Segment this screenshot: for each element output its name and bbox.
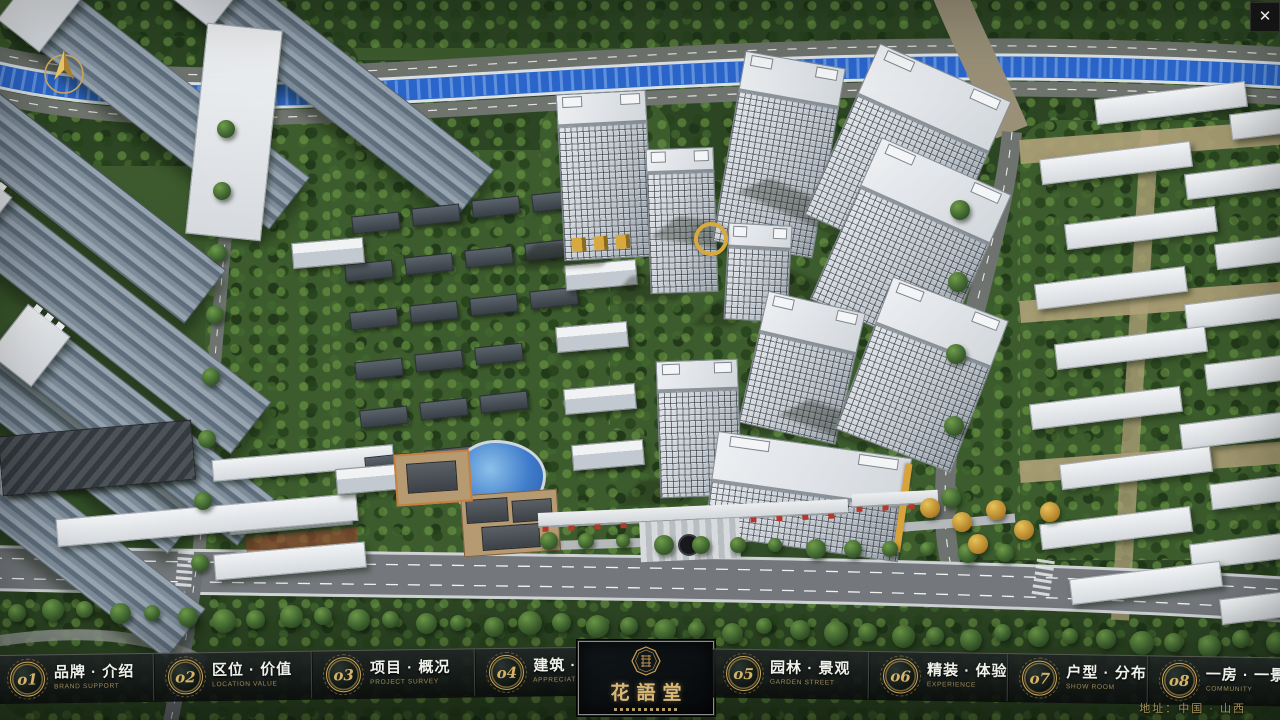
menu-label-en: PROJECT SURVEY: [370, 678, 439, 687]
gold-art-ring: [694, 222, 728, 256]
courtyard-roof: [406, 460, 458, 493]
autumn-tree: [1014, 520, 1034, 540]
street-tree: [578, 533, 594, 549]
street-tree: [844, 540, 862, 558]
courtyard-building: [393, 449, 472, 506]
masterplan-render: ✕ o1 品牌 · 介绍BRAND SUPPORT o2 区位 · 价值LOCA…: [0, 0, 1280, 720]
street-tree: [1266, 632, 1280, 654]
tower-roof: [556, 90, 648, 129]
street-tree: [1232, 630, 1250, 648]
street-tree: [616, 534, 630, 548]
street-tree: [382, 611, 399, 628]
menu-item-landscape[interactable]: o5 园林 · 景观GARDEN STREET: [712, 650, 870, 699]
street-tree: [654, 619, 676, 641]
street-tree: [42, 599, 64, 621]
street-tree: [722, 623, 743, 644]
menu-item-location-value[interactable]: o2 区位 · 价值LOCATION VALUE: [154, 652, 313, 701]
street-tree: [206, 306, 224, 324]
street-tree: [416, 613, 437, 634]
street-tree: [996, 544, 1014, 562]
compass-icon: [36, 42, 92, 102]
courtyard-roof: [481, 523, 541, 551]
project-address: 地址：中国 · 山西: [1139, 700, 1246, 716]
street-tree: [212, 609, 236, 633]
street-tree: [450, 615, 466, 631]
menu-label-zh: 区位 · 价值: [212, 661, 311, 680]
menu-item-brand-intro[interactable]: o1 品牌 · 介绍BRAND SUPPORT: [0, 654, 154, 703]
street-tree: [790, 620, 810, 640]
menu-item-interior-experience[interactable]: o6 精装 · 体验EXPERIENCE: [869, 652, 1009, 701]
building-tower: [556, 90, 653, 260]
street-tree: [960, 629, 982, 651]
street-tree: [620, 617, 638, 635]
street-tree: [1062, 628, 1078, 644]
menu-label-zh: 品牌 · 介绍: [54, 663, 153, 682]
menu-label-en: SHOW ROOM: [1066, 683, 1119, 691]
menu-number-badge: o5: [726, 656, 762, 692]
street-tree: [768, 538, 782, 552]
street-tree: [144, 605, 160, 621]
street-tree: [654, 535, 674, 555]
project-logo-caption: [614, 708, 678, 711]
seal-emblem-icon: [631, 646, 661, 676]
menu-item-project-overview[interactable]: o3 项目 · 概况PROJECT SURVEY: [312, 649, 476, 698]
autumn-tree: [968, 534, 988, 554]
menu-label-zh: 户型 · 分布: [1066, 664, 1147, 683]
street-tree: [946, 344, 966, 364]
street-tree: [806, 539, 826, 559]
project-logo-panel[interactable]: 花語堂: [578, 641, 714, 715]
tower-roof: [656, 359, 739, 394]
street-tree: [994, 624, 1011, 641]
menu-label-zh: 一房 · 一景: [1206, 666, 1280, 685]
street-tree: [692, 536, 710, 554]
street-tree: [178, 607, 198, 627]
street-tree: [948, 272, 968, 292]
menu-number-badge: o8: [1161, 663, 1197, 699]
street-tree: [484, 617, 504, 637]
close-button[interactable]: ✕: [1250, 2, 1280, 32]
menu-label-en: LOCATION VALUE: [212, 680, 278, 689]
menu-label-zh: 园林 · 景观: [770, 660, 868, 679]
street-tree: [191, 554, 209, 572]
menu-label-en: GARDEN STREET: [770, 679, 835, 688]
menu-label-en: EXPERIENCE: [927, 681, 980, 689]
menu-number-badge: o4: [489, 655, 524, 690]
autumn-tree: [952, 512, 972, 532]
menu-item-floorplans[interactable]: o7 户型 · 分布SHOW ROOM: [1008, 654, 1148, 703]
menu-label-zh: 项目 · 概况: [370, 659, 474, 678]
street-tree: [882, 541, 898, 557]
autumn-tree: [1040, 502, 1060, 522]
street-tree: [950, 200, 970, 220]
menu-label-en: COMMUNITY: [1205, 686, 1258, 694]
street-tree: [217, 120, 235, 138]
menu-number-badge: o1: [10, 661, 45, 696]
menu-label-zh: 精装 · 体验: [927, 662, 1008, 681]
tower-roof: [646, 147, 715, 175]
street-tree: [920, 542, 934, 556]
menu-number-badge: o7: [1022, 660, 1058, 696]
street-tree: [1028, 626, 1049, 647]
street-tree: [348, 609, 370, 631]
autumn-tree: [986, 500, 1006, 520]
menu-item-room-view[interactable]: o8 一房 · 一景COMMUNITY: [1147, 656, 1280, 705]
menu-group-right: o5 园林 · 景观GARDEN STREET o6 精装 · 体验EXPERI…: [712, 649, 1280, 707]
street-tree: [76, 601, 93, 618]
street-tree: [202, 368, 220, 386]
street-tree: [213, 182, 231, 200]
menu-group-left: o1 品牌 · 介绍BRAND SUPPORT o2 区位 · 价值LOCATI…: [0, 647, 578, 704]
menu-number-badge: o2: [168, 659, 203, 694]
street-tree: [688, 621, 705, 638]
autumn-tree: [920, 498, 940, 518]
street-tree: [926, 627, 944, 645]
tower-roof: [727, 222, 792, 251]
street-tree: [730, 537, 746, 553]
menu-number-badge: o6: [883, 658, 919, 694]
street-tree: [944, 416, 964, 436]
project-logo-title: 花語堂: [603, 678, 688, 705]
street-tree: [1198, 635, 1221, 658]
street-tree: [110, 603, 131, 624]
menu-number-badge: o3: [326, 657, 361, 692]
street-tree: [540, 532, 558, 550]
menu-label-en: BRAND SUPPORT: [54, 683, 119, 692]
street-tree: [756, 618, 772, 634]
